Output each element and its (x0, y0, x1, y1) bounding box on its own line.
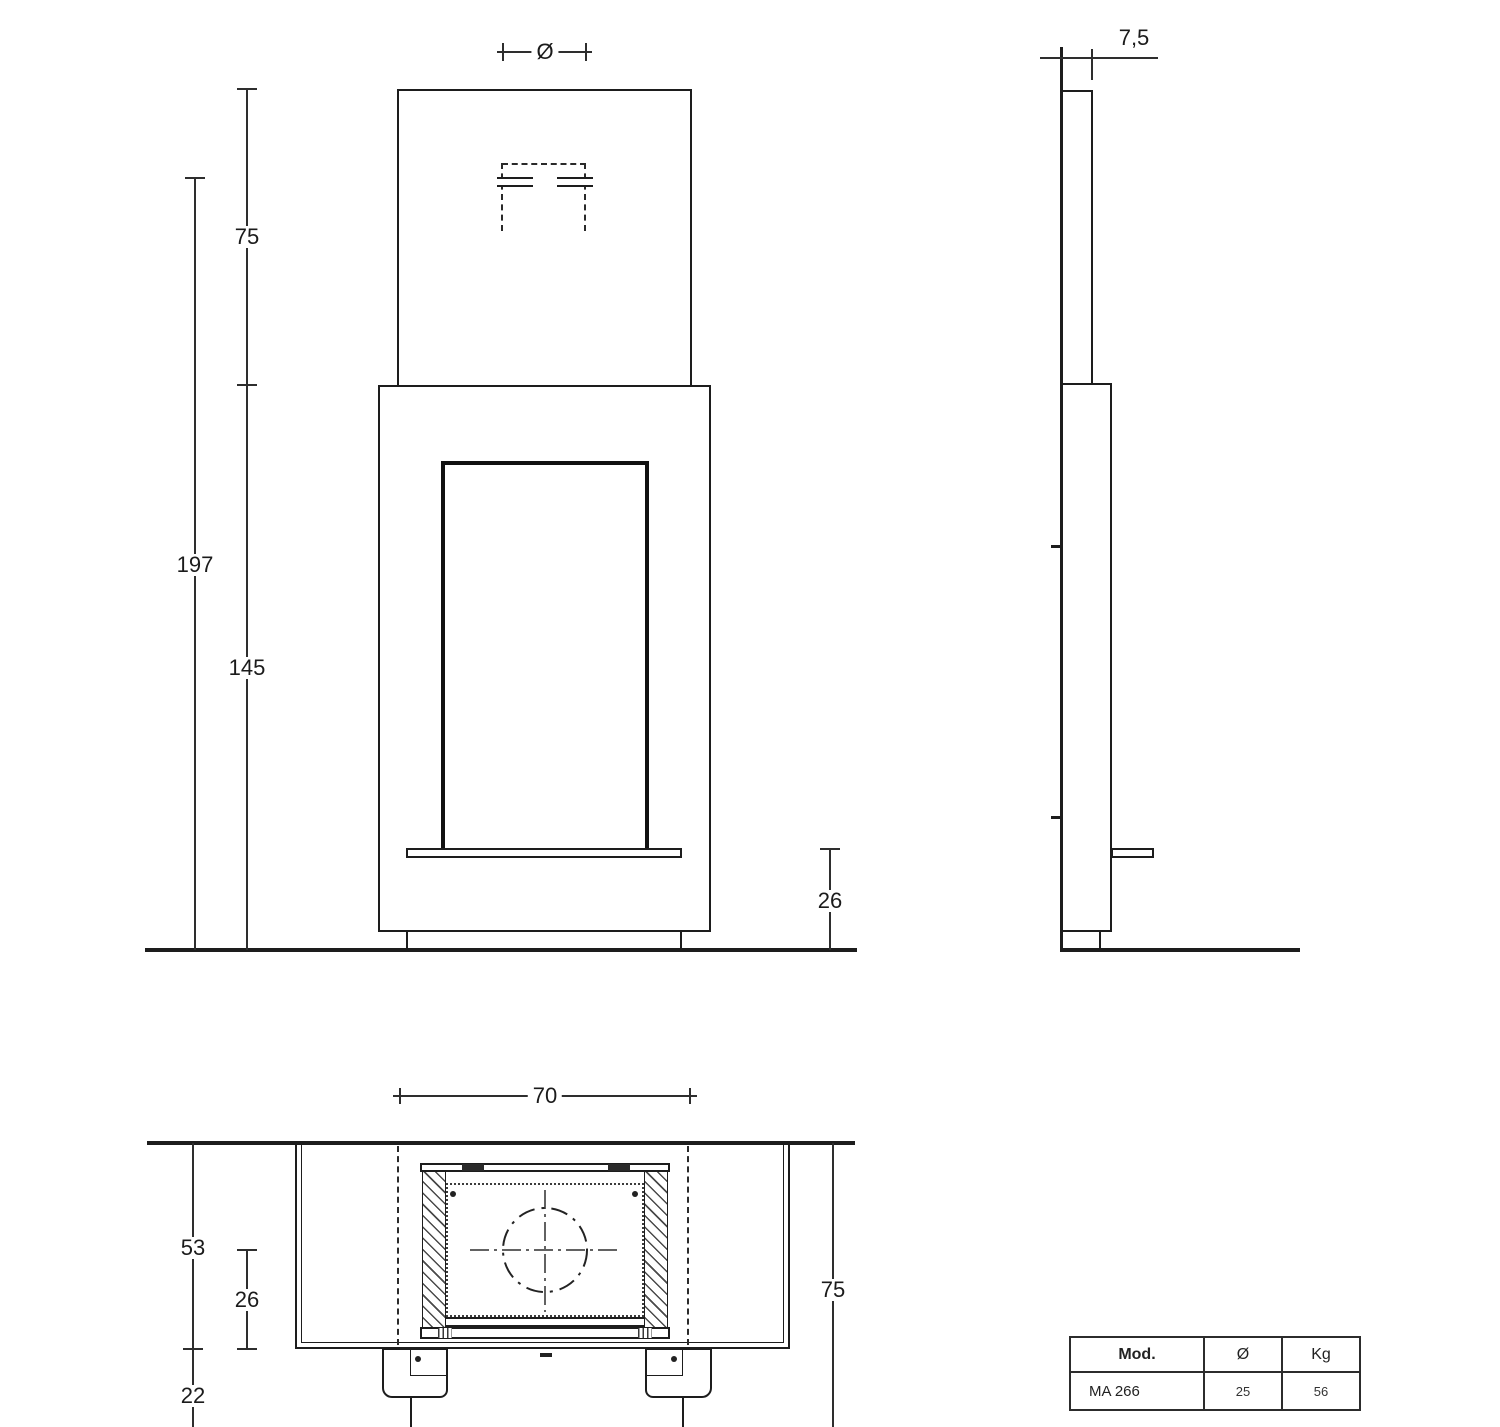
front-flue-hidden-right (584, 163, 586, 231)
plan-dim70-label: 70 (528, 1085, 562, 1107)
front-dim26-label: 26 (813, 890, 847, 912)
plan-foot-left-leader (410, 1397, 412, 1427)
spec-header-mod: Mod. (1071, 1338, 1205, 1373)
front-flue-flange-left (497, 177, 533, 187)
plan-dim26-tick-top (237, 1249, 257, 1251)
spec-table: Mod. Ø Kg MA 266 25 56 (1069, 1336, 1361, 1411)
plan-firebox-top-frame (420, 1163, 670, 1172)
plan-front-frame (420, 1327, 670, 1339)
front-dim197-tick-top (185, 177, 205, 179)
plan-hinge-left (438, 1328, 452, 1338)
side-wall-anchor-upper (1051, 545, 1060, 548)
plan-center-mark (540, 1353, 552, 1357)
front-flue-hidden-left (501, 163, 503, 231)
plan-dim26-label: 26 (230, 1289, 264, 1311)
plan-firebox-wall-left (422, 1171, 446, 1331)
side-dim75-label: 7,5 (1114, 27, 1155, 49)
plan-dim22-label: 22 (176, 1385, 210, 1407)
plan-foot-left-step (410, 1348, 448, 1376)
plan-foot-left-dot (415, 1356, 421, 1362)
front-flue-flange-right (557, 177, 593, 187)
front-dim75-tick-top (237, 88, 257, 90)
front-flue-hidden-top (502, 163, 586, 165)
front-dim26-tick-top (820, 848, 840, 850)
front-floor-line (145, 948, 857, 952)
plan-firebox-wall-right (644, 1171, 668, 1331)
plan-foot-right-dot (671, 1356, 677, 1362)
plan-firebox-clip-right (608, 1164, 630, 1171)
spec-header-dia: Ø (1205, 1338, 1283, 1373)
fireplace-technical-drawing: Ø 75 197 145 26 (0, 0, 1500, 1427)
spec-value-model: MA 266 (1071, 1373, 1205, 1409)
side-body-profile (1060, 383, 1112, 932)
front-dim145-label: 145 (224, 657, 271, 679)
spec-value-kg: 56 (1283, 1373, 1359, 1409)
plan-hinge-right (638, 1328, 652, 1338)
side-wall-line (1060, 47, 1063, 952)
plan-bolt-left (450, 1191, 456, 1197)
plan-foot-right-leader (682, 1397, 684, 1427)
plan-hidden-edge-left (397, 1146, 399, 1345)
plan-fire-chamber (446, 1183, 644, 1317)
plan-bolt-right (632, 1191, 638, 1197)
plan-hidden-edge-right (687, 1146, 689, 1345)
plan-firebox-clip-left (462, 1164, 484, 1171)
plan-foot-right-step (645, 1348, 683, 1376)
front-dim75-label: 75 (230, 226, 264, 248)
plan-grate-band (446, 1317, 644, 1327)
plan-dim26-tick-bottom (237, 1348, 257, 1350)
plan-dim70-tick-right (689, 1088, 691, 1104)
side-dim75-tick (1091, 49, 1093, 80)
side-floor-line (1060, 948, 1300, 952)
front-dia-dim-tick-left (502, 43, 504, 61)
front-dia-dim-label: Ø (531, 41, 558, 63)
side-dim75-line (1040, 57, 1158, 59)
side-wall-anchor-lower (1051, 816, 1060, 819)
front-chimney-outline (397, 89, 692, 387)
side-hearth-shelf (1111, 848, 1154, 858)
front-dim197-label: 197 (172, 554, 219, 576)
spec-header-kg: Kg (1283, 1338, 1359, 1373)
front-firebox-opening (441, 461, 649, 851)
front-hearth-shelf (406, 848, 682, 858)
plan-dim70-tick-left (399, 1088, 401, 1104)
plan-dim75-label: 75 (816, 1279, 850, 1301)
front-dia-dim-tick-right (585, 43, 587, 61)
spec-value-dia: 25 (1205, 1373, 1283, 1409)
plan-dim53-label: 53 (176, 1237, 210, 1259)
side-chimney-profile (1060, 90, 1093, 385)
